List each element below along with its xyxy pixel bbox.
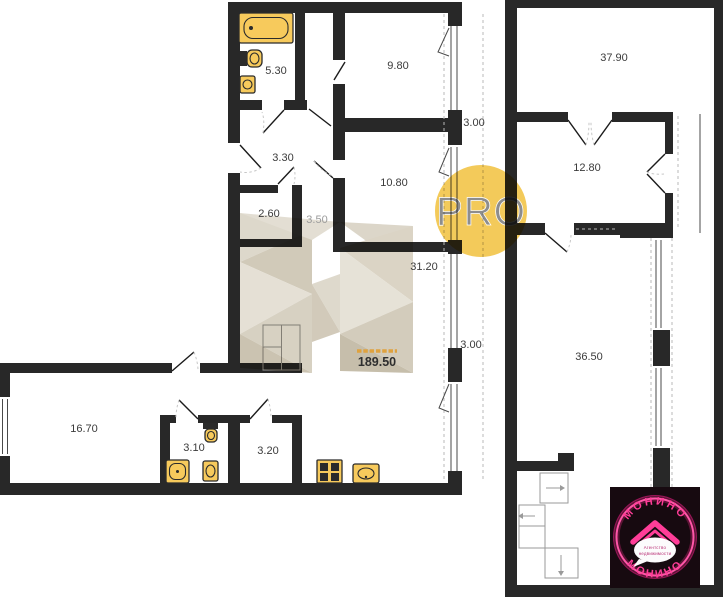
pro-watermark: PRO xyxy=(435,165,527,257)
area-label-bathroom-upper: 5.30 xyxy=(265,65,286,77)
area-label-storage-wing: 3.20 xyxy=(257,445,278,457)
area-label-bedroom-upper: 9.80 xyxy=(387,60,408,72)
toilet-icon xyxy=(240,50,262,67)
kitchen-sink-icon xyxy=(353,464,379,483)
stove-icon xyxy=(317,460,342,483)
balcony-dimension-lower: 3.00 xyxy=(460,339,481,351)
area-label-room-wing: 16.70 xyxy=(70,423,98,435)
cabinet-icon xyxy=(540,473,568,503)
cabinet-icon xyxy=(518,505,545,548)
area-label-living-kitchen: 31.20 xyxy=(410,261,438,273)
area-label-hall-small: 3.50 xyxy=(306,214,327,226)
floor-plan-drawing: 5.30 9.80 37.90 3.30 10.80 12.80 2.60 3.… xyxy=(0,0,723,600)
sink-icon xyxy=(203,461,218,481)
agency-watermark xyxy=(240,213,413,373)
stamp-tagline-line2: недвижимости xyxy=(639,551,672,556)
toilet-icon xyxy=(203,423,218,442)
area-label-room-large-right: 36.50 xyxy=(575,351,603,363)
area-label-room-top-right: 37.90 xyxy=(600,52,628,64)
floor-plan: 5.30 9.80 37.90 3.30 10.80 12.80 2.60 3.… xyxy=(0,0,723,600)
area-label-hall-upper: 3.30 xyxy=(272,152,293,164)
area-label-room-mid-right: 12.80 xyxy=(573,162,601,174)
stamp-speech-bubble xyxy=(634,538,676,563)
area-label-closet: 2.60 xyxy=(258,208,279,220)
pro-label: PRO xyxy=(436,190,526,234)
bathtub-icon xyxy=(239,13,293,43)
stamp-tagline-line1: Агентство xyxy=(644,545,667,550)
balcony-dimension-upper: 3.00 xyxy=(463,117,484,129)
sink-icon xyxy=(240,76,255,93)
shower-icon xyxy=(166,460,189,483)
area-label-bathroom-wing: 3.10 xyxy=(183,442,204,454)
area-label-room-upper-right: 10.80 xyxy=(380,177,408,189)
agency-stamp: МОНИНО МОНИНО Агентство недвижимости xyxy=(610,487,700,588)
cabinet-icon xyxy=(545,548,578,578)
total-area-label: 189.50 xyxy=(358,355,396,369)
